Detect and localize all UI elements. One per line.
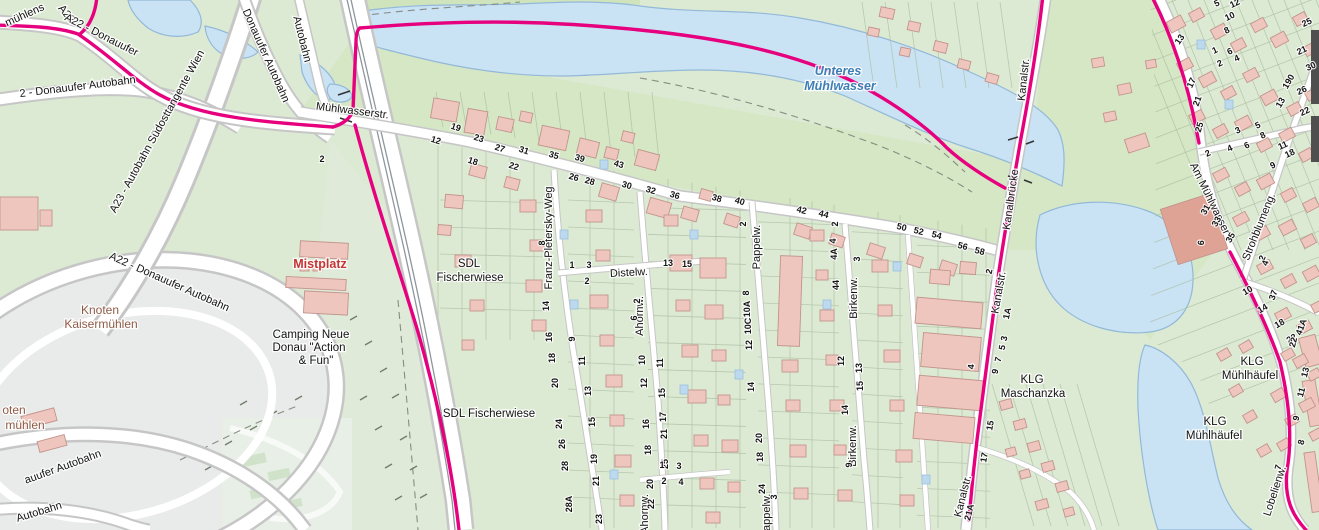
house-number: 15 <box>984 420 996 432</box>
building <box>700 478 714 489</box>
house-number: 2 <box>661 476 666 486</box>
house-number: 44 <box>831 280 841 290</box>
house-number: 2 <box>584 276 589 286</box>
house-number: 18 <box>547 353 557 363</box>
house-number: 11 <box>655 358 665 368</box>
building <box>722 440 738 452</box>
house-number: 10C <box>743 317 753 334</box>
building <box>820 310 834 321</box>
house-number: 17 <box>978 452 990 464</box>
house-number: 16 <box>641 419 651 429</box>
house-number: 9 <box>567 336 577 341</box>
house-number: 2 <box>632 298 642 303</box>
house-number: 10A <box>742 300 752 317</box>
area-label: Donau "Action <box>272 342 345 354</box>
house-number: 8 <box>537 240 547 245</box>
pond <box>922 475 930 484</box>
area-label: Mistplatz <box>293 257 346 271</box>
area-label: Mühlhäufel <box>1186 430 1242 442</box>
area-label: SDL Fischerwiese <box>443 408 535 420</box>
house-number: 15 <box>682 259 692 269</box>
house-number: 9 <box>844 462 854 467</box>
building <box>816 270 828 280</box>
building <box>777 256 802 347</box>
house-number: 24 <box>757 484 767 494</box>
building <box>890 400 904 411</box>
building <box>700 258 726 278</box>
pond <box>560 230 568 239</box>
pond <box>823 300 831 309</box>
house-number: 4 <box>678 477 683 487</box>
house-number: 2 <box>319 154 324 164</box>
pond <box>600 160 608 169</box>
street-label: Birkenw. <box>847 425 859 467</box>
building <box>606 375 622 387</box>
pond <box>735 370 743 379</box>
pond <box>570 300 578 309</box>
building <box>438 224 452 235</box>
building <box>929 269 950 285</box>
area-label: & Fun" <box>299 355 334 367</box>
building <box>676 300 690 311</box>
area-label: Maschanzka <box>1001 388 1066 400</box>
house-number: 23 <box>594 514 604 524</box>
building <box>786 400 800 411</box>
house-number: 4A <box>829 248 839 260</box>
street-label: Birkenw. <box>848 277 860 319</box>
house-number: 20 <box>645 479 655 489</box>
house-number: 3 <box>586 260 591 270</box>
street-label: Franz-Pletersky-Weg <box>543 186 555 289</box>
building <box>615 455 631 467</box>
area-label: Fischerwiese <box>436 272 503 284</box>
building <box>519 111 533 123</box>
building <box>470 300 484 311</box>
house-number: 3 <box>676 461 681 471</box>
building <box>303 291 348 315</box>
house-number: 2 <box>738 221 748 226</box>
house-number: 26 <box>557 439 567 449</box>
area-label: mühlen <box>5 418 44 432</box>
building <box>586 210 602 222</box>
building <box>884 350 900 362</box>
building <box>872 260 888 272</box>
house-number: 1 <box>659 460 664 470</box>
house-number: 6 <box>1196 240 1206 246</box>
house-number: 19 <box>589 454 599 464</box>
house-number: 18 <box>755 452 765 462</box>
area-label: Camping Neue <box>273 329 350 341</box>
building <box>728 482 740 492</box>
building <box>430 98 459 122</box>
house-number: 4 <box>966 364 976 370</box>
house-number: 17 <box>658 412 668 422</box>
house-number: 11 <box>577 356 587 366</box>
house-number: 10 <box>637 355 647 365</box>
house-number: 13 <box>583 386 593 396</box>
area-label: KLG <box>1240 356 1263 368</box>
building <box>40 210 52 226</box>
area-label: KLG <box>1020 374 1043 386</box>
building <box>590 295 608 308</box>
house-number: 21 <box>591 476 601 486</box>
building <box>610 415 624 426</box>
pond <box>680 385 688 394</box>
building <box>1103 111 1117 122</box>
building <box>620 495 634 506</box>
house-number: 14 <box>541 301 551 311</box>
house-number: 20 <box>550 378 560 388</box>
pond <box>893 262 901 271</box>
building <box>712 350 726 361</box>
house-number: 28A <box>564 495 574 512</box>
map-viewport[interactable]: mühlensA22A22 - Donauufer2 - Donauufer A… <box>0 0 1319 530</box>
house-number: 12 <box>836 356 846 366</box>
area-label: Knoten <box>81 303 119 317</box>
house-number: 12 <box>744 340 754 350</box>
building <box>794 488 808 499</box>
house-number: 24 <box>554 419 564 429</box>
area-label: KLG <box>1203 416 1226 428</box>
house-number: 18 <box>643 445 653 455</box>
building <box>532 320 546 331</box>
pond <box>1197 40 1205 49</box>
house-number: 13 <box>663 258 673 268</box>
area-label: oten <box>2 403 25 417</box>
pond <box>690 230 698 239</box>
building <box>694 435 708 446</box>
building <box>462 340 474 350</box>
house-number: 13 <box>854 363 864 373</box>
house-number: 28 <box>560 461 570 471</box>
building <box>1091 57 1104 68</box>
area-label: Kaisermühlen <box>64 317 137 331</box>
house-number: 2 <box>830 221 840 226</box>
building <box>878 305 892 316</box>
house-number: 21 <box>659 429 669 439</box>
area-label: Mühlwasser <box>804 79 877 93</box>
building <box>834 445 846 455</box>
house-number: 4 <box>828 238 838 243</box>
street-label: Pappelw. <box>751 225 763 270</box>
pond <box>610 470 618 479</box>
building <box>682 345 698 357</box>
house-number: 15 <box>855 381 865 391</box>
house-number: 6 <box>629 315 639 320</box>
building <box>838 490 852 501</box>
building <box>1145 59 1156 69</box>
street-label: Distelw. <box>610 266 648 280</box>
building <box>900 495 914 506</box>
building <box>867 27 879 37</box>
building <box>444 194 463 209</box>
building <box>896 450 912 462</box>
building <box>782 360 798 372</box>
house-number: 20 <box>754 433 764 443</box>
map-edge-artifacts <box>1311 30 1319 162</box>
house-number: 14 <box>840 405 850 415</box>
building <box>0 197 38 230</box>
building <box>520 200 536 212</box>
house-number: 1 <box>569 260 574 270</box>
building <box>899 47 910 57</box>
building <box>718 395 730 405</box>
building <box>496 116 514 132</box>
building <box>596 250 610 261</box>
pond <box>1225 100 1233 109</box>
area-label: Unteres <box>815 64 862 78</box>
house-number: 12 <box>639 378 649 388</box>
house-number: 16 <box>544 332 554 342</box>
building <box>790 445 806 457</box>
house-number: 8 <box>741 290 751 295</box>
building <box>600 335 614 346</box>
building <box>960 261 977 274</box>
area-label: Mühlhäufel <box>1222 370 1278 382</box>
building <box>917 375 983 410</box>
building <box>526 280 542 292</box>
building <box>915 297 983 329</box>
building <box>664 215 678 226</box>
building <box>688 390 706 403</box>
building <box>1117 83 1132 95</box>
house-number: 3 <box>769 494 779 499</box>
house-number: 22 <box>646 499 656 509</box>
area-label: SDL <box>458 258 481 270</box>
building <box>907 21 921 32</box>
house-number: 15 <box>657 388 667 398</box>
building <box>810 230 824 241</box>
house-number: 14 <box>746 382 756 392</box>
building <box>705 305 723 319</box>
house-number: 3 <box>852 256 862 261</box>
building <box>706 512 720 523</box>
house-number: 15 <box>587 417 597 427</box>
building <box>913 412 975 443</box>
